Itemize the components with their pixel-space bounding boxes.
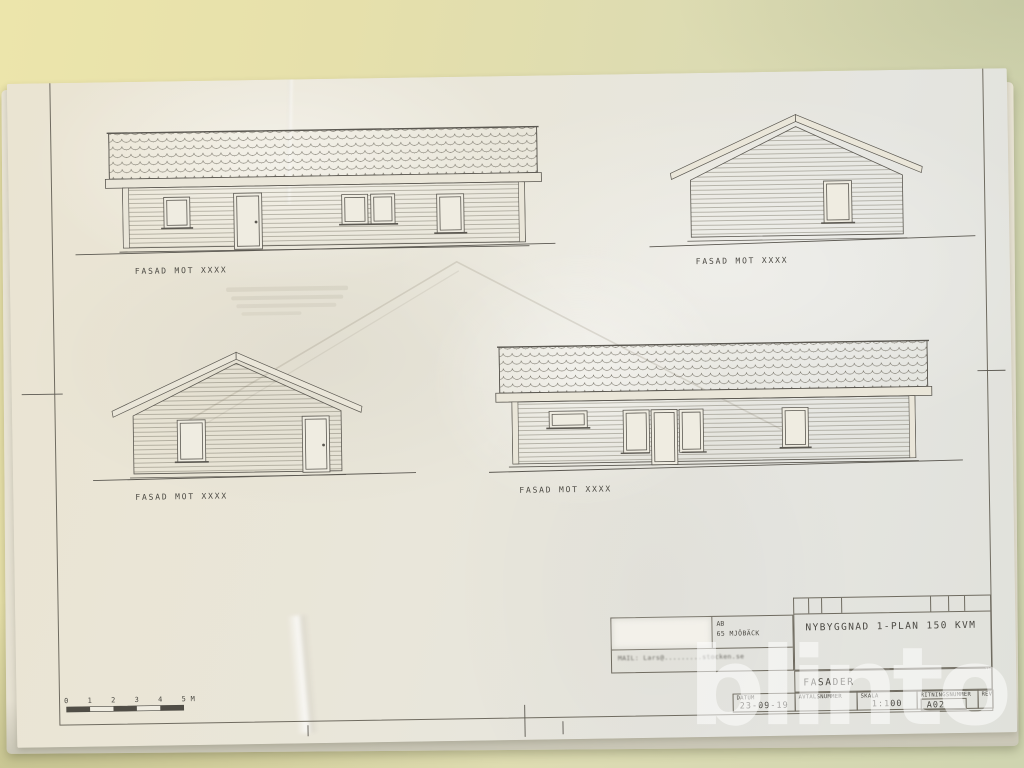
facade-elevation-3 xyxy=(91,350,416,481)
scale-label: 4 xyxy=(158,696,162,704)
facade-elevation-1 xyxy=(74,126,556,255)
scale-label: 1 xyxy=(87,697,91,705)
blinto-watermark: blinto xyxy=(688,634,1006,742)
facade-caption: FASAD MOT XXXX xyxy=(135,491,228,501)
facade-elevation-4 xyxy=(487,340,963,472)
scale-label: 5 xyxy=(181,695,185,703)
scale-label: 0 xyxy=(64,697,68,705)
scale-unit-label: M xyxy=(190,695,194,703)
trademark-symbol: ™ xyxy=(984,667,993,677)
scale-bar: 0 1 2 3 4 5 M xyxy=(64,695,195,712)
scale-label: 3 xyxy=(134,696,138,704)
facade-caption: FASAD MOT XXXX xyxy=(519,484,612,494)
scale-label: 2 xyxy=(111,696,115,704)
photo-background: 0 1 2 3 4 5 M FASAD MOT XXXX FASAD MOT X… xyxy=(0,0,1024,768)
facade-caption: FASAD MOT XXXX xyxy=(135,265,228,275)
facade-caption: FASAD MOT XXXX xyxy=(696,256,789,266)
facade-elevation-2 xyxy=(647,112,975,247)
